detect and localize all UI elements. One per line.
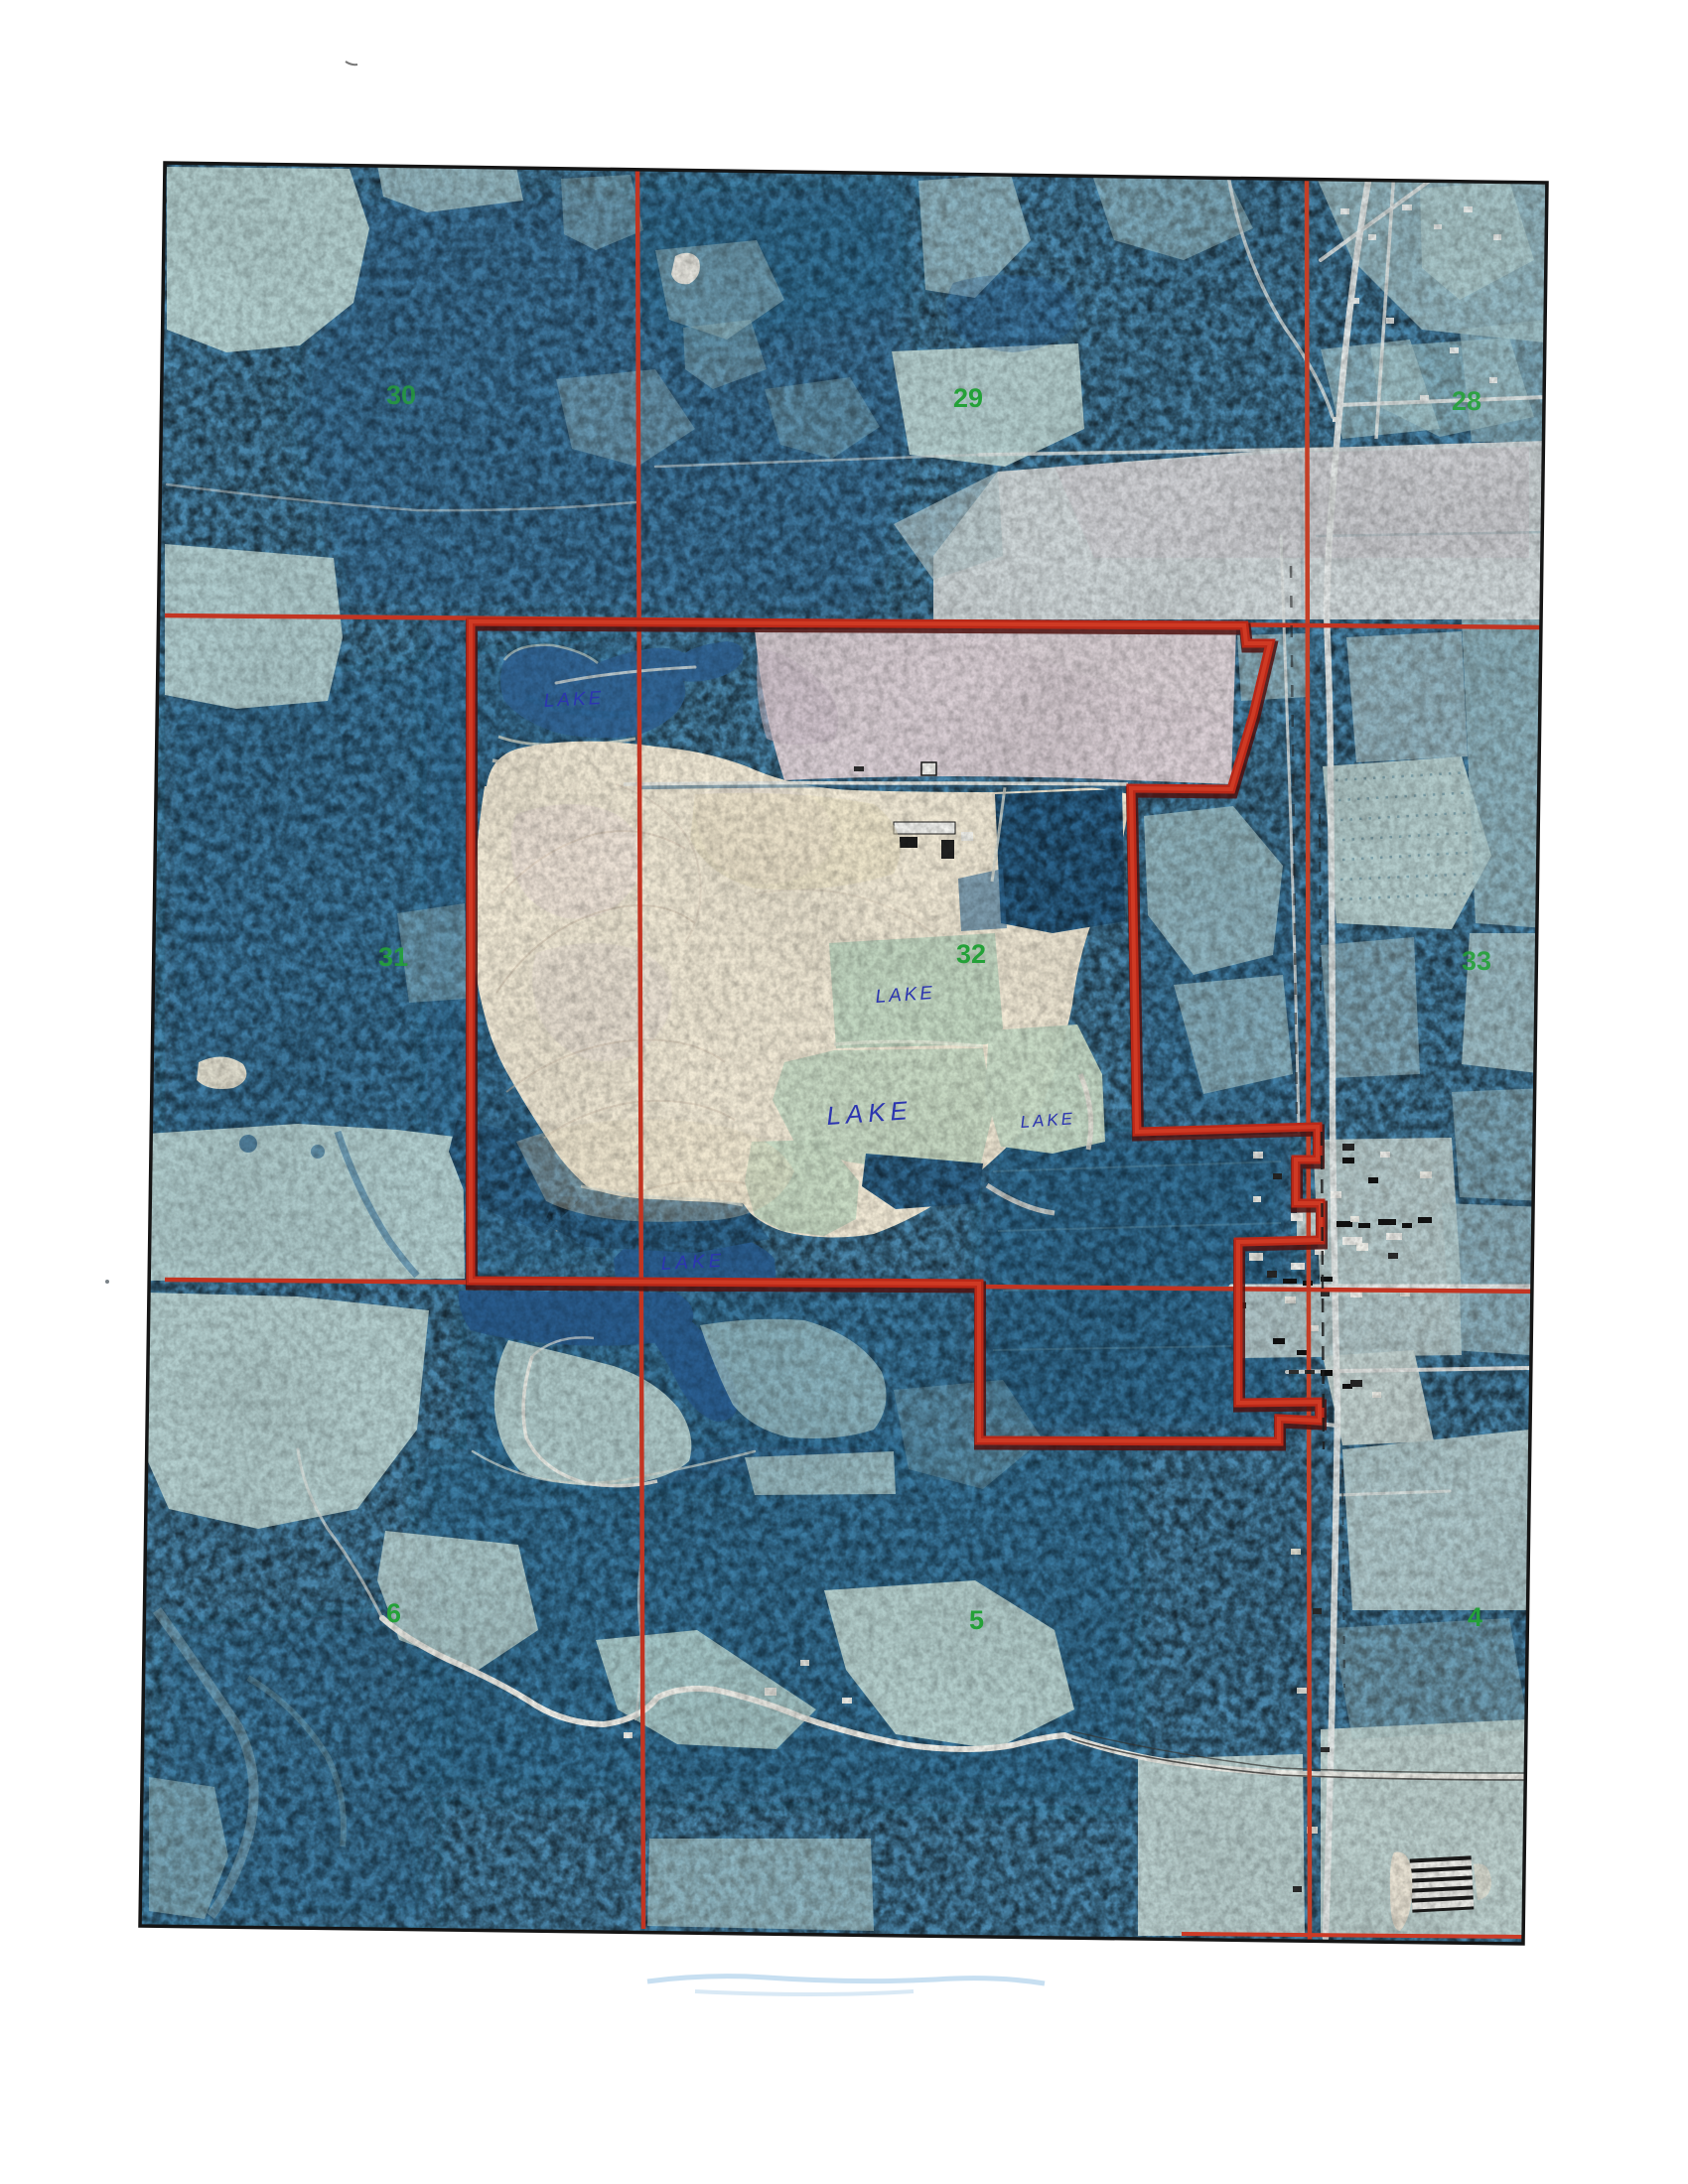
- svg-text:6: 6: [386, 1598, 401, 1628]
- svg-text:4: 4: [1468, 1602, 1482, 1632]
- svg-text:31: 31: [378, 942, 408, 972]
- svg-text:LAKE: LAKE: [660, 1251, 726, 1275]
- svg-text:30: 30: [386, 380, 416, 410]
- svg-text:5: 5: [969, 1605, 984, 1635]
- svg-text:29: 29: [953, 383, 983, 413]
- svg-text:LAKE: LAKE: [1020, 1109, 1076, 1132]
- svg-text:LAKE: LAKE: [825, 1095, 913, 1131]
- svg-text:LAKE: LAKE: [875, 983, 936, 1008]
- svg-text:LAKE: LAKE: [543, 688, 605, 712]
- svg-text:33: 33: [1462, 946, 1491, 976]
- svg-text:28: 28: [1452, 386, 1481, 416]
- svg-text:32: 32: [956, 939, 986, 969]
